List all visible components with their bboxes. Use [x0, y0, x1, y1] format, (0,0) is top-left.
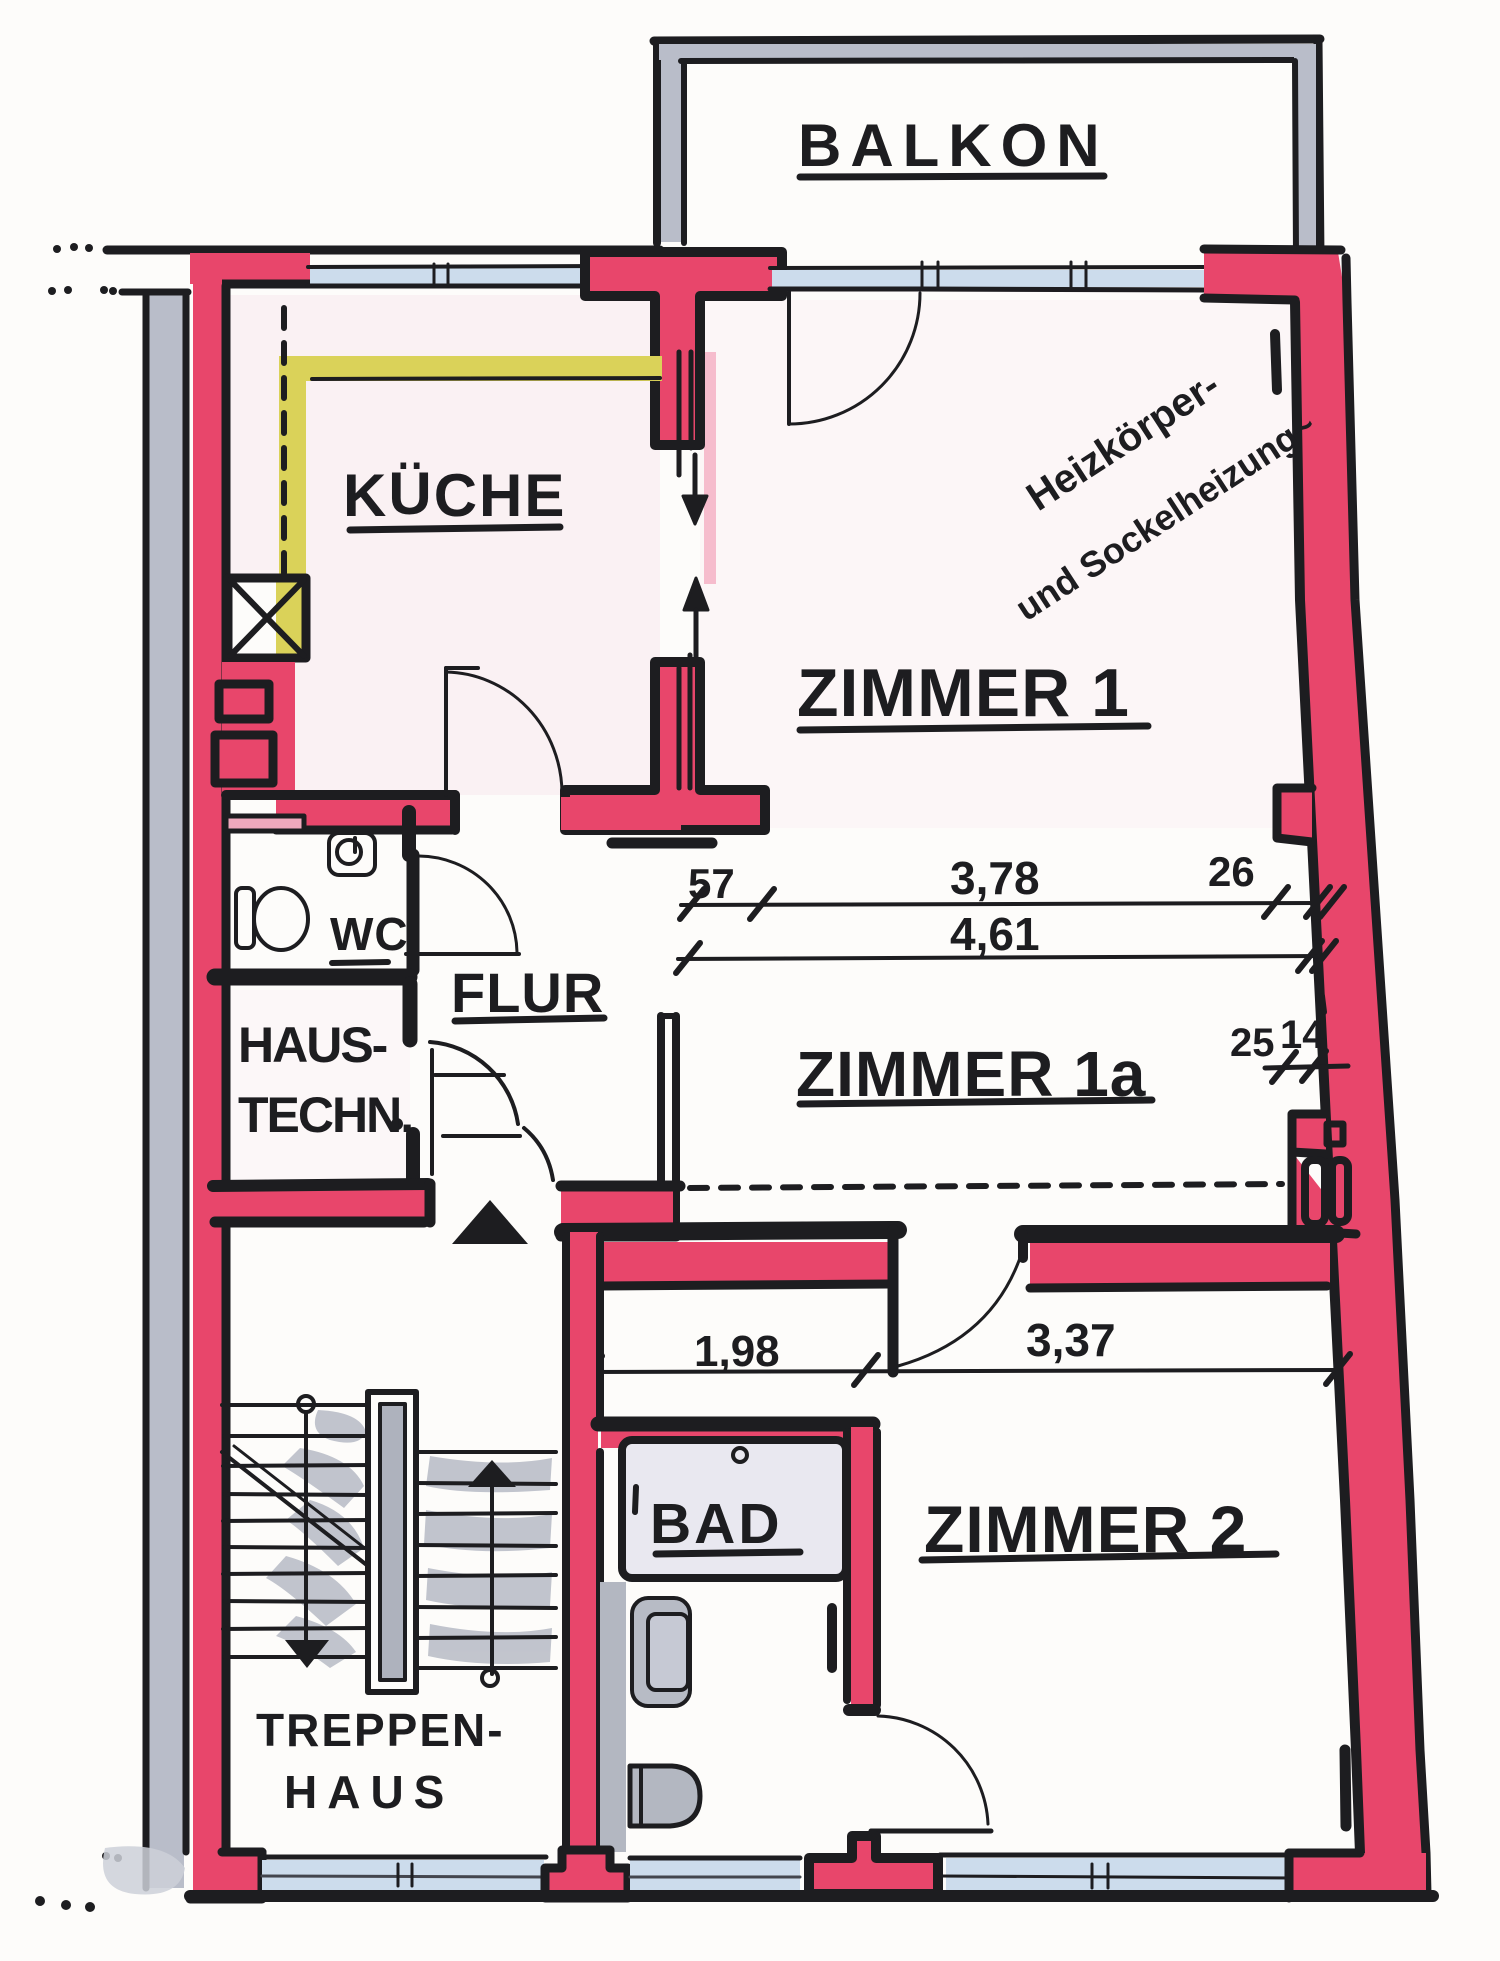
- svg-text:TECHN.: TECHN.: [238, 1087, 412, 1143]
- svg-text:BAD: BAD: [650, 1492, 783, 1556]
- svg-text:3,37: 3,37: [1026, 1314, 1116, 1366]
- svg-text:ZIMMER 1: ZIMMER 1: [797, 655, 1130, 731]
- svg-text:57: 57: [688, 860, 735, 907]
- svg-text:4,61: 4,61: [950, 908, 1040, 960]
- svg-text:3,78: 3,78: [950, 852, 1040, 904]
- svg-text:1,98: 1,98: [694, 1327, 780, 1376]
- svg-text:HAUS-: HAUS-: [238, 1017, 387, 1073]
- svg-text:KÜCHE: KÜCHE: [343, 460, 566, 529]
- svg-text:HAUS: HAUS: [284, 1766, 454, 1818]
- svg-text:FLUR: FLUR: [451, 961, 604, 1024]
- svg-text:26: 26: [1208, 848, 1255, 895]
- svg-text:BALKON: BALKON: [798, 112, 1109, 179]
- svg-text:WC: WC: [330, 908, 409, 960]
- svg-text:25: 25: [1230, 1021, 1275, 1065]
- svg-text:TREPPEN-: TREPPEN-: [256, 1704, 505, 1756]
- svg-text:14: 14: [1280, 1013, 1325, 1057]
